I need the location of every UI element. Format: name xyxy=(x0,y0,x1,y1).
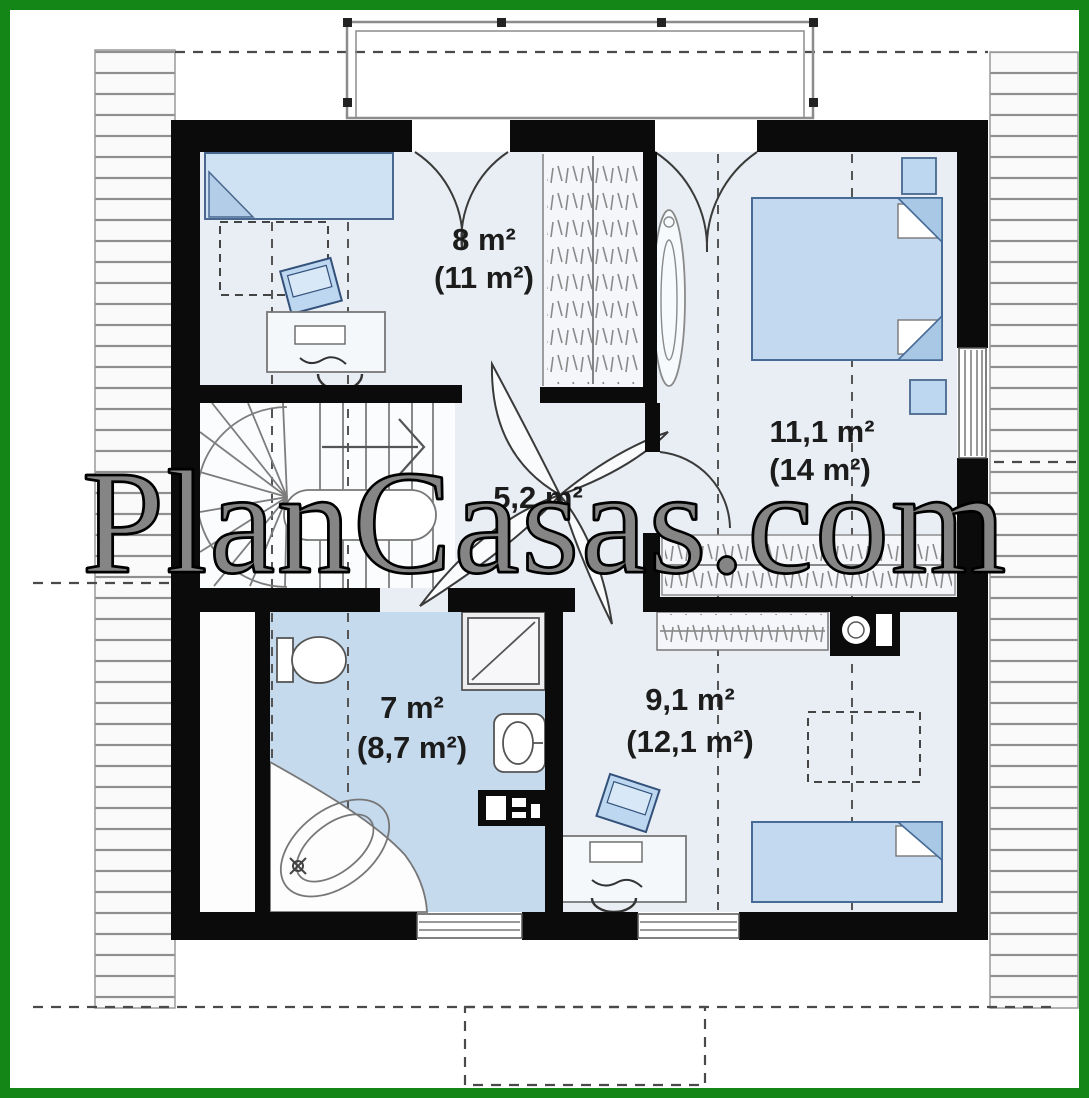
wall-hall-south-a xyxy=(171,588,380,612)
hall-closet-hangers xyxy=(665,538,952,592)
wall-bottom-c xyxy=(739,912,963,940)
roof-hatch-right-band xyxy=(990,52,1078,1008)
wardrobe-hangers xyxy=(547,158,639,384)
washing-machine xyxy=(478,790,545,826)
railing-post xyxy=(497,18,506,27)
railing-post xyxy=(809,18,818,27)
floor-plan-canvas: 8 m² (11 m²) 11,1 m² (14 m²) 5,2 m² 7 m²… xyxy=(0,0,1089,1098)
bed-single-upper-left xyxy=(205,153,393,219)
label-bedroom-upper-right-net: 11,1 m² xyxy=(769,414,874,449)
wardrobe-top xyxy=(543,154,639,386)
wall-bottom-b xyxy=(522,912,638,940)
nightstand xyxy=(902,158,936,194)
railing-post xyxy=(809,98,818,107)
railing-post xyxy=(343,98,352,107)
wall-right-lower xyxy=(957,458,988,940)
wall-top-a xyxy=(171,120,412,152)
wall-bottom-a xyxy=(171,912,417,940)
floor-plan-drawing: 8 m² (11 m²) 11,1 m² (14 m²) 5,2 m² 7 m²… xyxy=(0,0,1089,1098)
toilet xyxy=(277,637,346,683)
wall-closet-east xyxy=(643,152,657,403)
roof-hatch-left-band xyxy=(95,50,175,1008)
wall-bathroom-west xyxy=(255,600,270,912)
bed-double-upper-right xyxy=(752,198,942,360)
railing-post xyxy=(657,18,666,27)
label-bedroom-upper-left-gross: (11 m²) xyxy=(434,260,534,295)
label-bedroom-upper-left-net: 8 m² xyxy=(452,222,516,257)
cheval-mirror xyxy=(653,210,685,386)
label-hallway-net: 5,2 m² xyxy=(493,480,583,515)
wall-top-c xyxy=(757,120,963,152)
bathtub-faucet xyxy=(290,858,306,874)
wall-hall-east-upper xyxy=(645,403,660,452)
window-bottom-bathroom xyxy=(417,914,522,938)
wall-hallcloset-south xyxy=(643,597,957,612)
window-bottom-bedroom xyxy=(638,914,739,938)
label-bedroom-upper-right-gross: (14 m²) xyxy=(769,452,871,487)
nightstand xyxy=(910,380,946,414)
closet-hangers xyxy=(660,614,825,648)
hall-closet xyxy=(662,535,955,595)
knee-wall-strip xyxy=(200,612,255,912)
wall-stair-north xyxy=(200,385,462,403)
label-bedroom-lower-right-gross: (12,1 m²) xyxy=(626,724,753,759)
wall-left xyxy=(171,120,200,940)
keyboard-icon xyxy=(295,326,345,344)
closet-lower-right xyxy=(657,612,828,650)
balcony-railing xyxy=(343,18,818,118)
window-right-wall xyxy=(959,348,986,458)
dormer-dash-rect xyxy=(465,1007,705,1085)
stair-handrail xyxy=(284,490,436,540)
wall-closet-south xyxy=(540,387,657,403)
keyboard-icon xyxy=(590,842,642,862)
wall-top-b xyxy=(510,120,655,152)
wall-right-upper xyxy=(957,120,988,348)
label-bathroom-gross: (8,7 m²) xyxy=(357,730,467,765)
wall-bathroom-east xyxy=(545,588,563,912)
label-bathroom-net: 7 m² xyxy=(380,690,444,725)
railing-post xyxy=(343,18,352,27)
label-bedroom-lower-right-net: 9,1 m² xyxy=(645,682,735,717)
bathroom-sink xyxy=(494,714,545,772)
bed-single-lower-right xyxy=(752,822,942,902)
shower xyxy=(462,612,545,690)
